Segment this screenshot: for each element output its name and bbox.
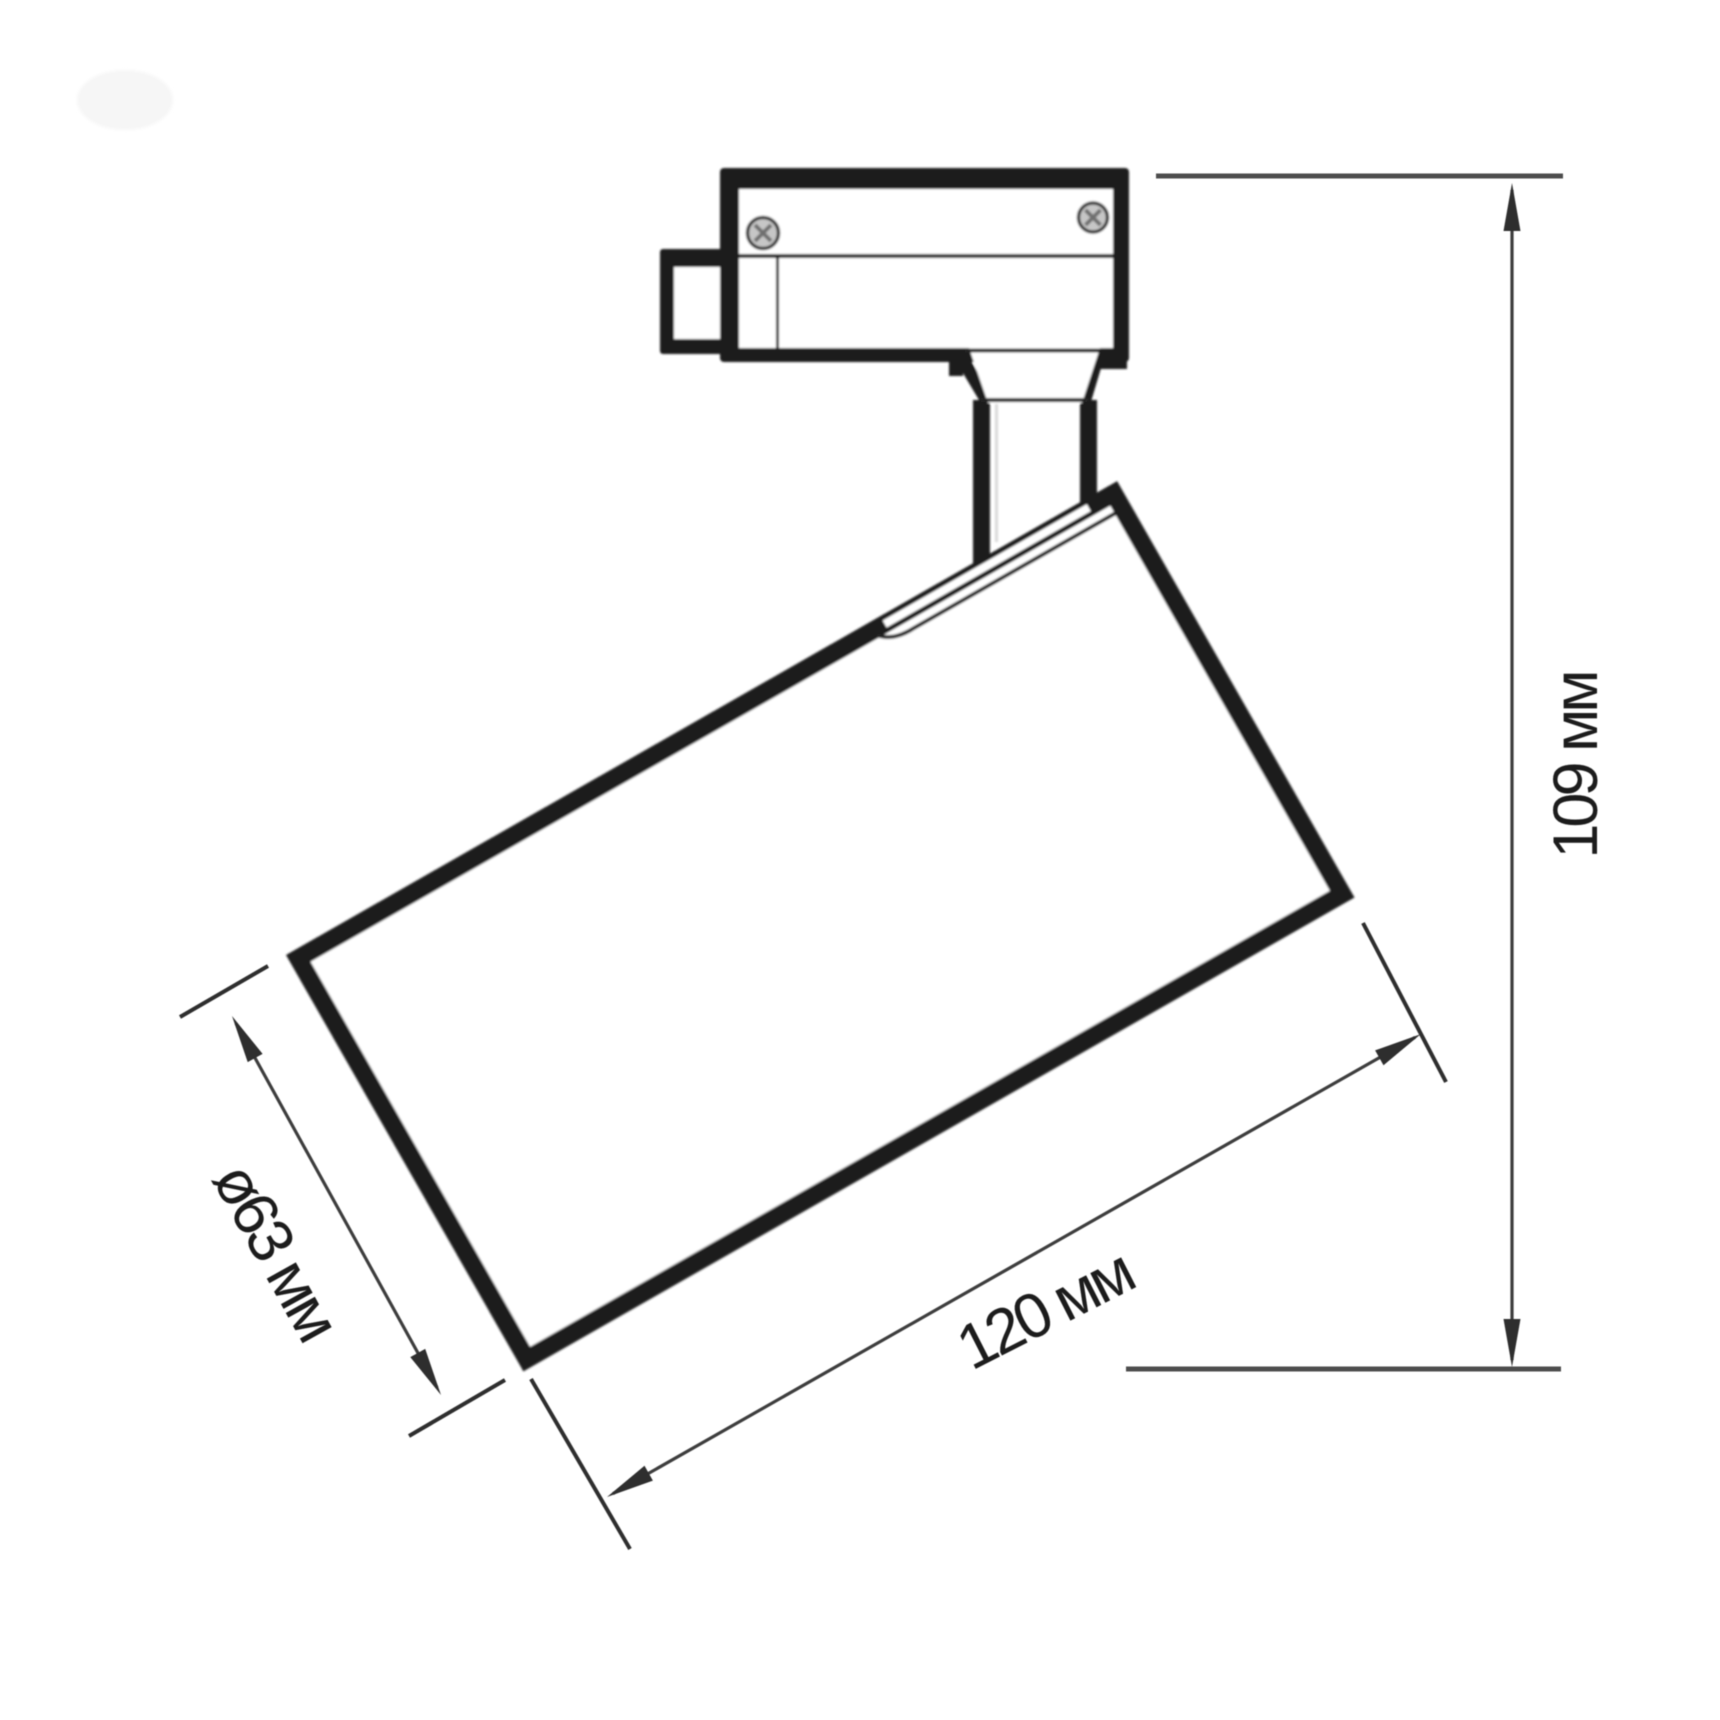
- svg-text:109 мм: 109 мм: [1541, 673, 1611, 858]
